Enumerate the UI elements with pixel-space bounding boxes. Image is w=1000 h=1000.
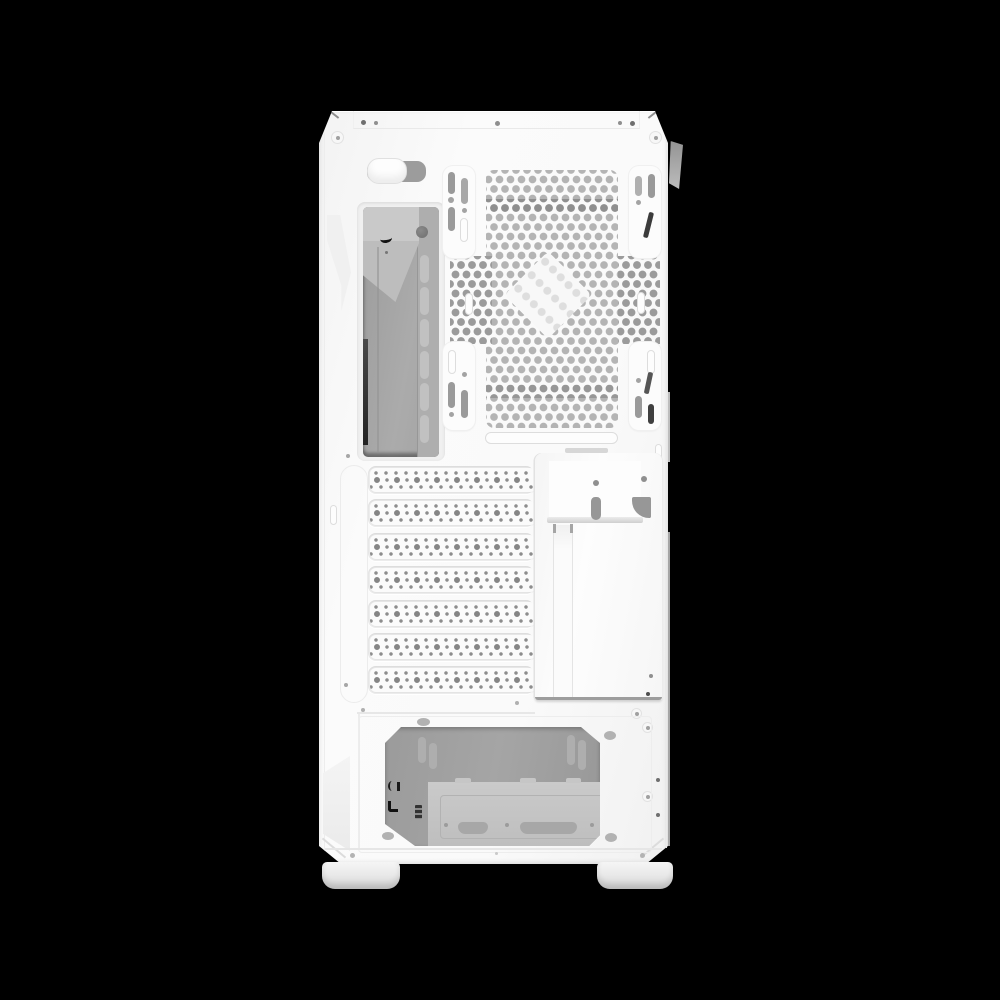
io-wall-vent-slot <box>420 255 429 283</box>
pci-slot-cover <box>368 499 534 527</box>
screw-dot <box>649 674 653 678</box>
screw-dot <box>495 121 500 126</box>
screw-dot <box>593 480 599 486</box>
screw-dot <box>361 120 366 125</box>
cable-slot <box>485 432 618 444</box>
cage-screw <box>590 823 594 827</box>
vertical-gpu-bracket <box>535 453 662 700</box>
side-panel-edge-sliver <box>668 532 670 846</box>
vent-edge-slot <box>465 293 473 315</box>
interior-stamped-vent <box>418 737 426 763</box>
screw-dot <box>361 708 365 712</box>
standoff-screw <box>416 226 428 238</box>
screw-dot <box>641 476 647 482</box>
rail-slot <box>648 404 654 424</box>
rail-slot-empty <box>647 350 655 374</box>
rail-slot <box>461 390 468 418</box>
psu-opening <box>385 727 600 846</box>
case-foot-right <box>597 862 673 889</box>
pci-slot-cover <box>368 666 534 694</box>
rail-hole <box>636 378 641 383</box>
interior-arc-mark <box>388 781 396 791</box>
io-wall-vent-slot <box>420 287 429 315</box>
rail-hole <box>448 197 454 203</box>
interior-stamped-vent <box>578 740 586 770</box>
corner-seam-mark <box>648 109 659 119</box>
screw-dot <box>640 853 645 858</box>
rail-slot <box>461 178 468 204</box>
cable-clip <box>415 805 422 819</box>
pci-cover-vent-pattern <box>370 501 536 525</box>
pci-slot-covers <box>368 466 534 694</box>
cage-slot <box>520 822 577 834</box>
pc-case-rear-panel <box>319 111 668 864</box>
pci-cover-vent-pattern <box>370 602 536 626</box>
pci-cover-vent-pattern <box>370 668 536 692</box>
interior-bar-mark <box>397 782 400 791</box>
pci-cover-vent-pattern <box>370 468 536 492</box>
io-wall-vent-slot <box>420 319 429 347</box>
case-foot-left <box>322 862 400 889</box>
right-edge-seam <box>666 150 667 848</box>
thumbscrew-oval <box>604 731 616 740</box>
vent-edge-slot <box>637 292 645 314</box>
hdd-cage <box>428 782 628 846</box>
rail-hole <box>449 412 454 417</box>
rail-slash-mark <box>644 372 653 395</box>
io-wall-vent-slot <box>420 415 429 443</box>
rail-slot <box>648 174 655 198</box>
side-panel-tab[interactable] <box>669 141 683 189</box>
vent-dark-row <box>486 199 618 212</box>
rail-slot-empty <box>460 218 468 242</box>
cage-slot <box>458 822 488 834</box>
top-panel-strip <box>353 111 640 129</box>
cage-tab <box>520 778 536 783</box>
screw-dot <box>350 853 355 858</box>
pci-slot-cover <box>368 600 534 628</box>
corner-seam-mark <box>328 109 339 119</box>
screw-dot <box>618 121 622 125</box>
screw-dot <box>495 852 498 855</box>
screw-dot <box>346 454 350 458</box>
screw-dot <box>656 813 660 817</box>
pci-cover-vent-pattern <box>370 568 536 592</box>
pci-slot-cover <box>368 533 534 561</box>
rail-slot <box>448 382 455 408</box>
rail-slash-mark <box>643 212 654 238</box>
cage-tab <box>566 778 581 783</box>
pci-cover-vent-pattern <box>370 535 536 559</box>
thumbscrew-oval <box>382 832 394 840</box>
rail-hole <box>636 200 641 205</box>
left-edge-highlight <box>327 215 351 311</box>
cage-tab <box>455 778 471 783</box>
side-panel-latch-handle[interactable] <box>367 158 407 184</box>
rail-slot <box>635 396 642 418</box>
interior-stamped-vent <box>429 743 437 769</box>
thumbscrew-oval <box>417 718 430 726</box>
io-wall-vent-slot <box>420 383 429 411</box>
screw-dot <box>646 692 650 696</box>
pci-frame-groove <box>340 465 368 703</box>
psu-seam-line <box>357 712 535 714</box>
screw-dot <box>385 251 388 254</box>
fan-rail-bottom-left <box>443 342 475 430</box>
fan-rail-bottom-right <box>629 342 661 430</box>
vertical-gpu-slot-channel <box>553 525 573 697</box>
corner-screw-boss <box>331 131 344 144</box>
io-shield-opening <box>363 207 439 457</box>
left-bottom-facet <box>323 756 350 851</box>
interior-L-mark <box>388 801 398 812</box>
rail-slot <box>635 176 642 196</box>
io-inner-edge <box>377 247 379 452</box>
cage-screw <box>505 823 509 827</box>
interior-stamped-vent <box>567 735 575 765</box>
thumbscrew-slot <box>330 505 337 525</box>
pci-slot-cover <box>368 566 534 594</box>
rail-slot <box>448 207 455 231</box>
keyhole-slot <box>591 497 601 520</box>
screw-dot <box>344 683 348 687</box>
fan-rail-top-right <box>629 166 661 258</box>
io-dark-bar <box>363 339 368 445</box>
rail-slot-empty <box>448 350 456 374</box>
pci-cover-vent-pattern <box>370 635 536 659</box>
fan-rail-top-left <box>443 166 475 258</box>
pci-slot-cover <box>368 466 534 494</box>
cage-screw <box>444 823 448 827</box>
io-wall-vent-slot <box>420 351 429 379</box>
bottom-flange-line <box>325 848 662 850</box>
rail-hole <box>462 372 467 377</box>
fan-vent-honeycomb-top <box>486 170 618 258</box>
thumbscrew-oval <box>605 833 617 842</box>
rail-hole <box>462 208 467 213</box>
vent-dark-row <box>486 385 618 398</box>
pci-slot-cover <box>368 633 534 661</box>
io-wall-vents <box>420 255 429 443</box>
corner-screw-boss <box>649 131 662 144</box>
screw-dot <box>515 701 519 705</box>
screw-dot <box>630 121 635 126</box>
screw-dot <box>656 778 660 782</box>
rail-slot <box>448 172 455 194</box>
screw-dot <box>374 121 378 125</box>
side-panel-edge-sliver <box>668 392 670 462</box>
product-photo-stage <box>0 0 1000 1000</box>
